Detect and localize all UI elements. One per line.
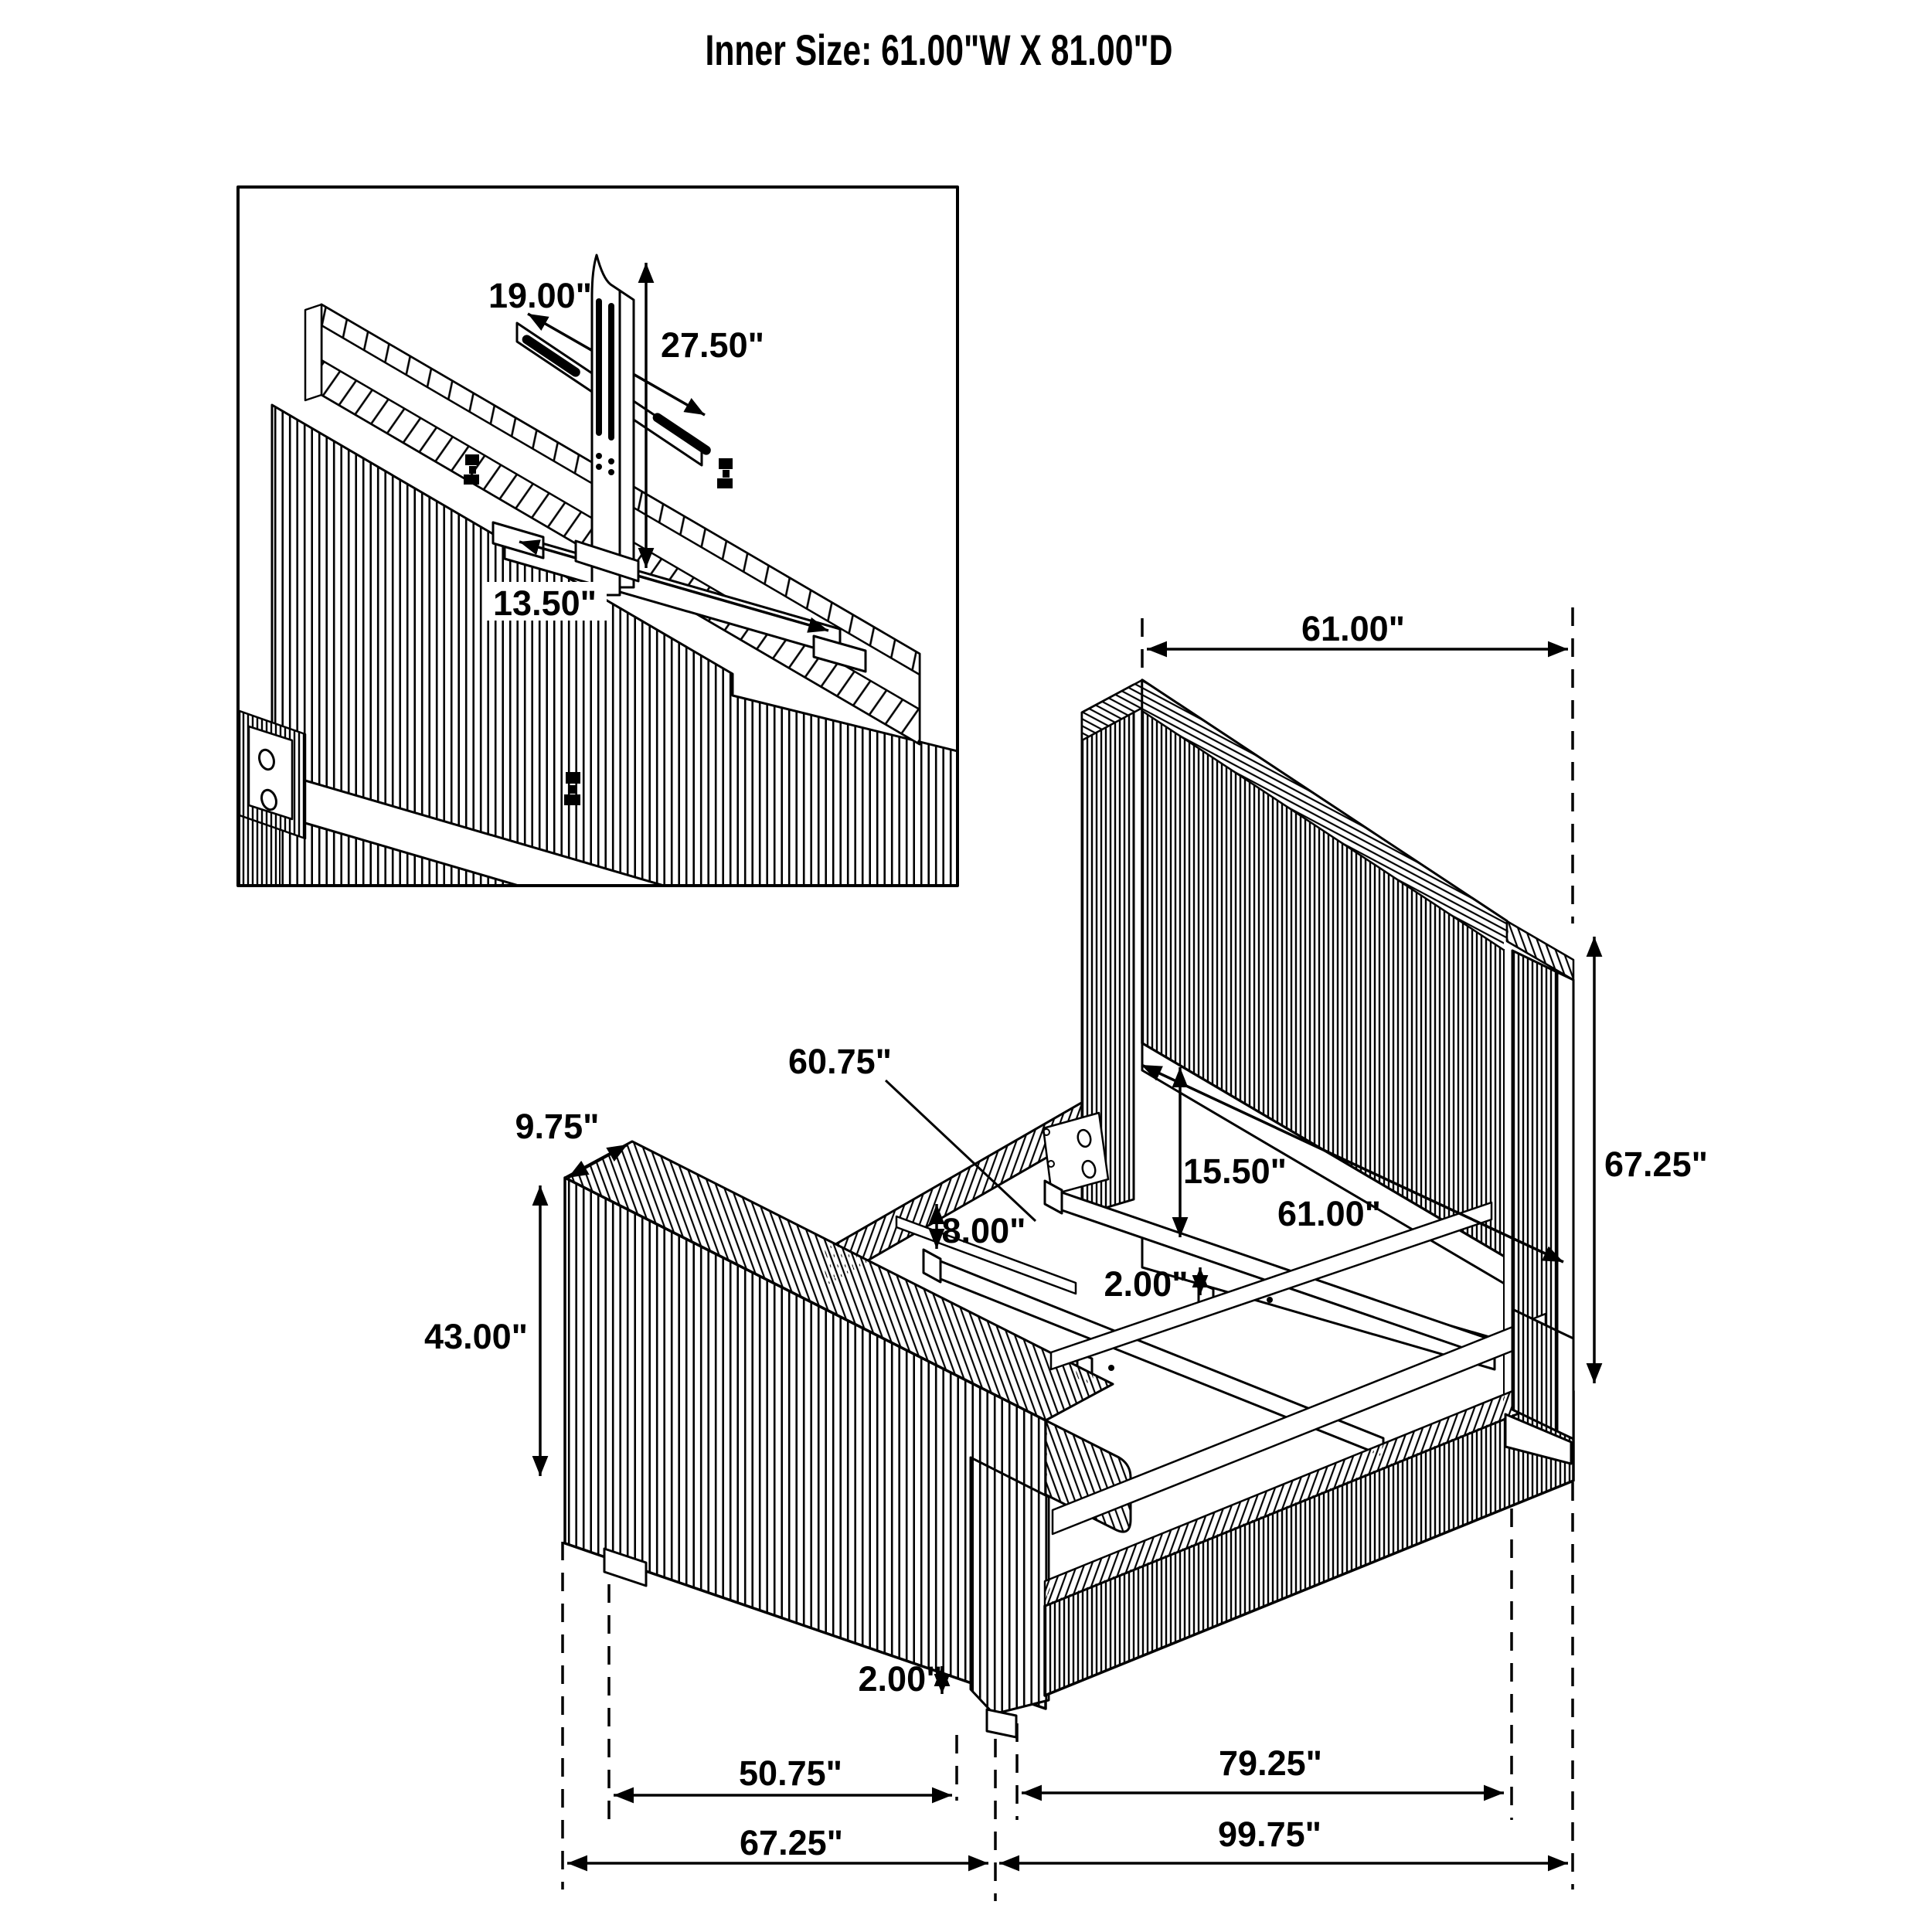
svg-text:8.00": 8.00" <box>942 1211 1026 1250</box>
svg-text:27.50": 27.50" <box>661 325 764 365</box>
svg-text:61.00": 61.00" <box>1301 609 1405 648</box>
svg-text:99.75": 99.75" <box>1218 1815 1321 1854</box>
svg-text:67.25": 67.25" <box>740 1823 843 1862</box>
svg-text:79.25": 79.25" <box>1219 1743 1322 1783</box>
svg-text:43.00": 43.00" <box>424 1317 528 1356</box>
svg-text:67.25": 67.25" <box>1604 1145 1708 1184</box>
svg-text:2.00": 2.00" <box>859 1659 943 1699</box>
svg-text:15.50": 15.50" <box>1183 1151 1287 1191</box>
svg-text:60.75": 60.75" <box>788 1042 892 1081</box>
svg-text:19.00": 19.00" <box>488 276 592 315</box>
svg-text:61.00": 61.00" <box>1277 1194 1381 1233</box>
svg-text:Inner Size: 61.00"W X 81.00"D: Inner Size: 61.00"W X 81.00"D <box>706 26 1173 74</box>
svg-text:13.50": 13.50" <box>493 583 597 623</box>
svg-text:2.00": 2.00" <box>1104 1264 1189 1304</box>
svg-text:50.75": 50.75" <box>739 1753 842 1793</box>
svg-text:9.75": 9.75" <box>515 1107 600 1146</box>
